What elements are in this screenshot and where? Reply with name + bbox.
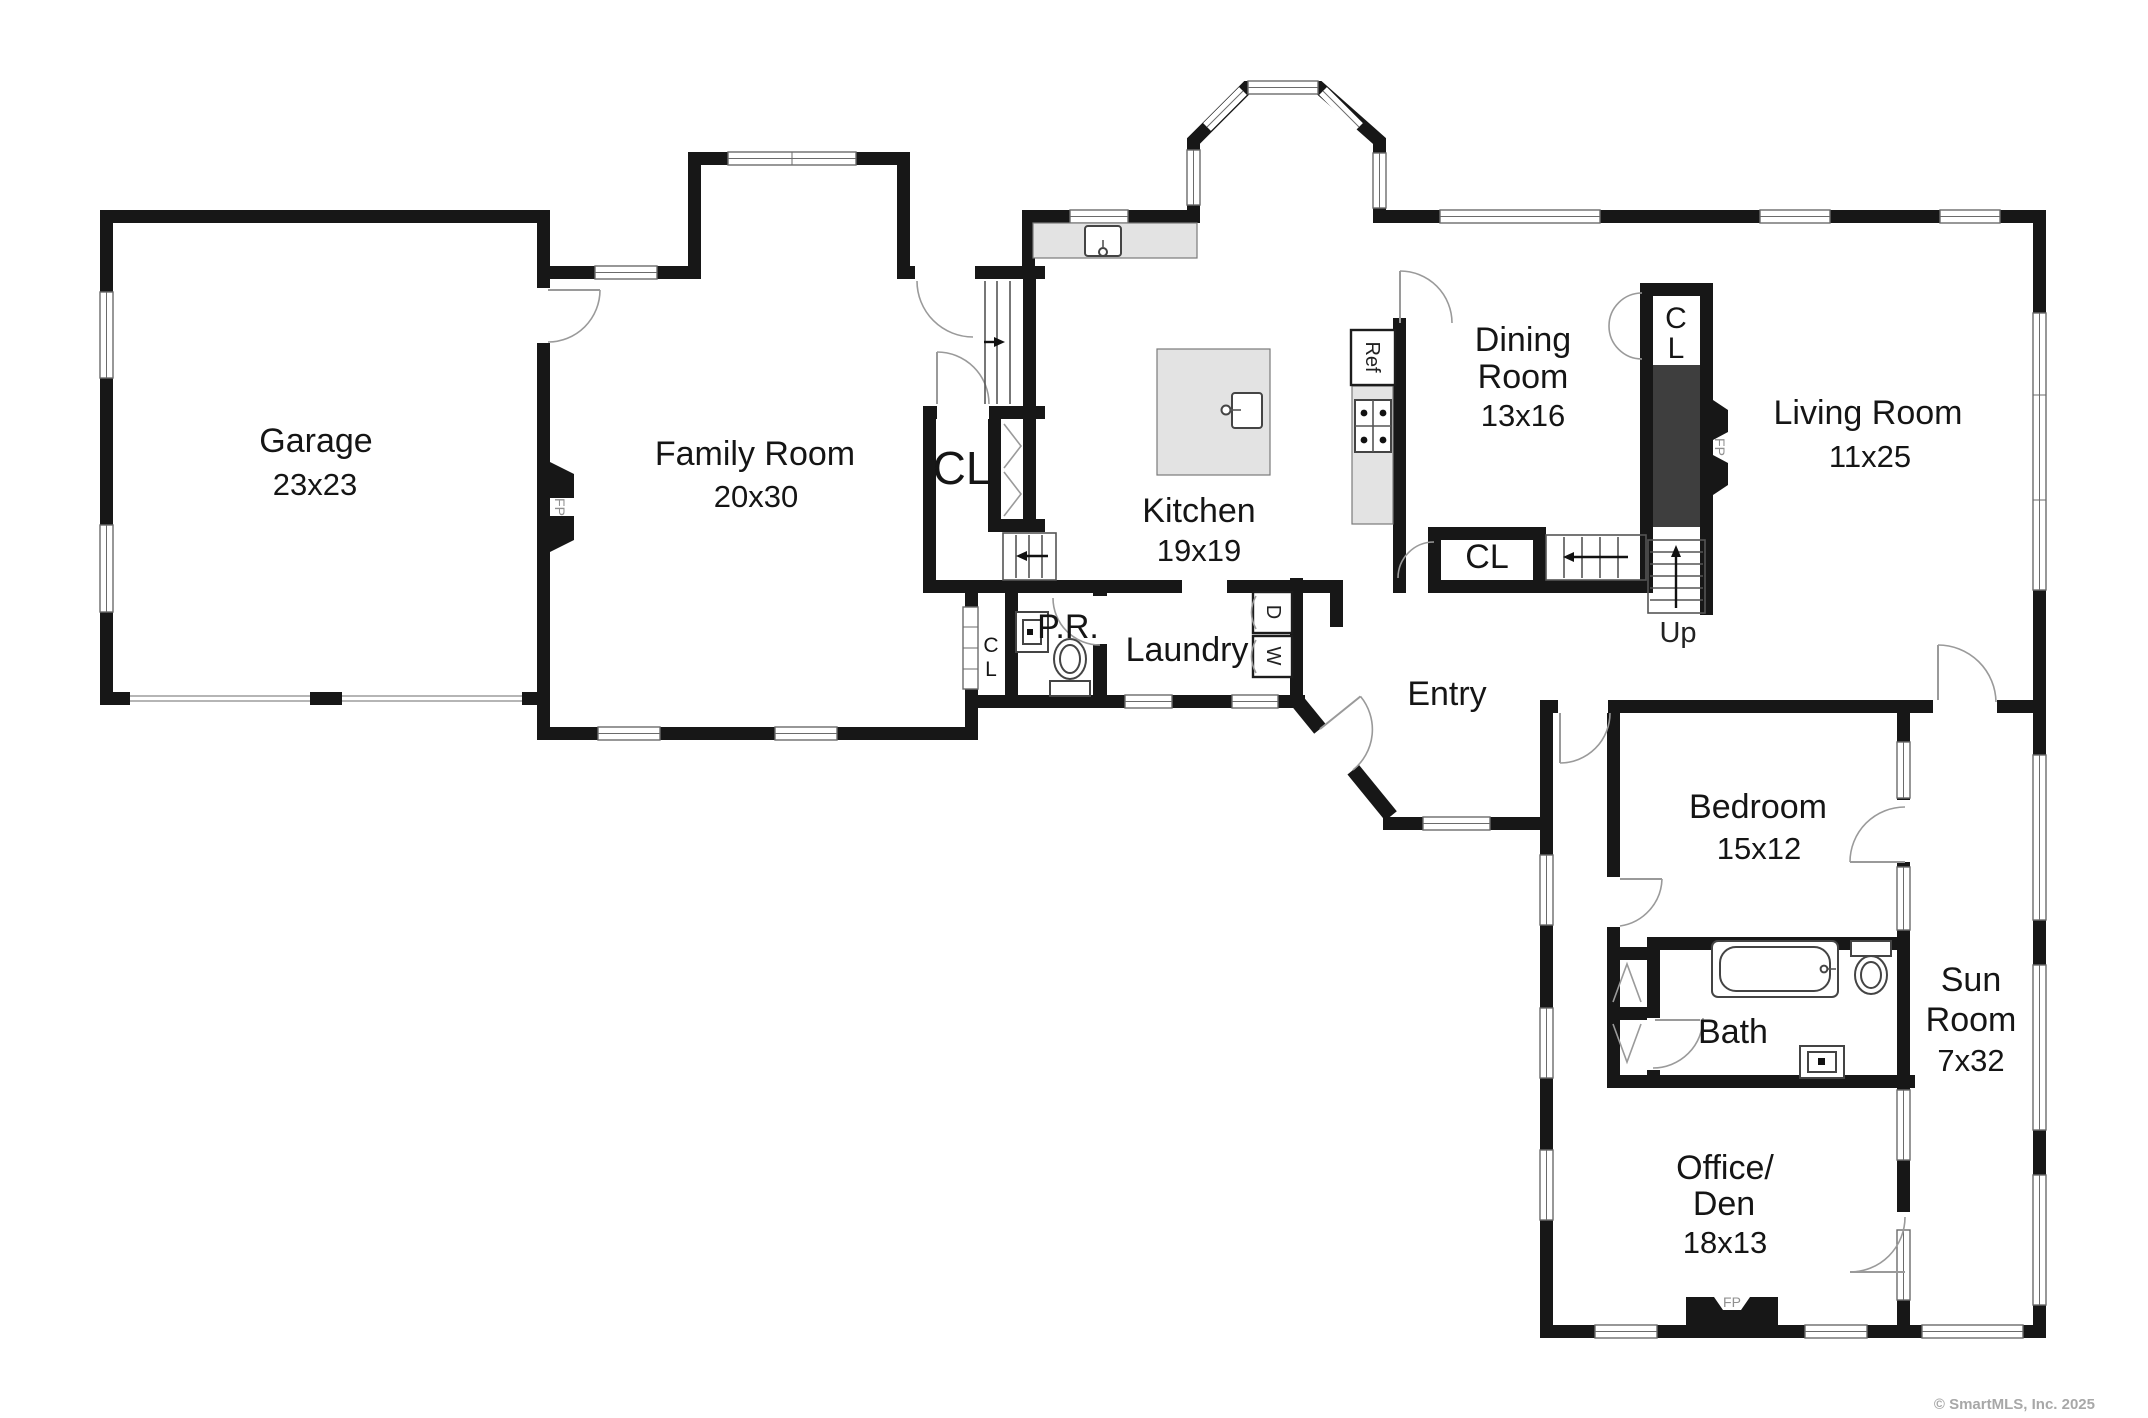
powder-room-toilet — [1050, 639, 1090, 696]
garage-dims: 23x23 — [273, 467, 357, 502]
powder-closet-label-c: C — [983, 634, 998, 657]
living-closet-label-c: C — [1665, 302, 1687, 335]
copyright-text: © SmartMLS, Inc. 2025 — [1934, 1396, 2095, 1413]
laundry-label: Laundry — [1126, 631, 1249, 669]
dryer-label: D — [1262, 605, 1284, 619]
family-room-label: Family Room — [655, 435, 855, 473]
kitchen-dims: 19x19 — [1157, 533, 1241, 568]
entry-label: Entry — [1407, 675, 1486, 713]
back-stairs — [984, 281, 1010, 404]
bath-sink — [1800, 1046, 1844, 1078]
bedroom-dims: 15x12 — [1717, 831, 1801, 866]
family-fireplace-label: FP — [552, 498, 568, 516]
back-stairs-lower-steps — [1003, 533, 1056, 580]
sun-room-label-2: Room — [1926, 1001, 2017, 1039]
powder-room-label: P.R. — [1037, 608, 1099, 646]
family-room-dims: 20x30 — [714, 479, 798, 514]
office-den-label-2: Den — [1693, 1185, 1755, 1223]
bath-toilet — [1851, 941, 1891, 994]
office-fireplace: FP — [1686, 1294, 1778, 1325]
basement-stairs-down — [1546, 535, 1646, 580]
kitchen-island — [1157, 349, 1270, 475]
front-door-opening — [1320, 729, 1353, 770]
kitchen-counter-top — [1033, 223, 1197, 258]
floor-plan: Ref D W — [0, 0, 2148, 1418]
living-room-label: Living Room — [1774, 394, 1963, 432]
dryer: D — [1252, 592, 1293, 633]
living-room-dims: 11x25 — [1829, 439, 1911, 474]
washer-label: W — [1262, 647, 1284, 666]
bathtub — [1712, 941, 1838, 997]
kitchen-counter-range — [1352, 386, 1393, 524]
family-room-fireplace: FP — [550, 462, 574, 552]
dining-room-label-1: Dining — [1475, 321, 1571, 359]
living-closet-label-l: L — [1668, 332, 1685, 365]
sun-room-dims: 7x32 — [1937, 1043, 2004, 1078]
dining-closet-label: CL — [1465, 538, 1508, 576]
bedroom-label: Bedroom — [1689, 788, 1827, 826]
office-den-dims: 18x13 — [1683, 1225, 1767, 1260]
garage-label: Garage — [259, 422, 372, 460]
refrigerator: Ref — [1351, 330, 1395, 385]
hall-closet-label: CL — [933, 442, 992, 494]
bath-label: Bath — [1698, 1013, 1768, 1051]
pantry-bifold-doors — [1004, 424, 1021, 516]
living-room-chimney: FP — [1653, 365, 1728, 527]
floor-plan-page: Ref D W — [0, 0, 2148, 1418]
dining-room-dims: 13x16 — [1481, 398, 1565, 433]
washer: W — [1252, 636, 1293, 677]
living-fireplace-label: FP — [1712, 438, 1728, 456]
dining-room-label-2: Room — [1478, 358, 1569, 396]
stairs-up-label: Up — [1659, 617, 1696, 649]
kitchen-label: Kitchen — [1142, 492, 1255, 530]
powder-closet-label-l: L — [985, 658, 997, 681]
louver-closet-door — [963, 607, 978, 689]
office-fireplace-label: FP — [1723, 1294, 1741, 1310]
sun-room-label-1: Sun — [1941, 961, 2002, 999]
office-den-label-1: Office/ — [1676, 1149, 1774, 1187]
main-stairs-up — [1648, 540, 1705, 613]
refrigerator-label: Ref — [1361, 341, 1383, 373]
